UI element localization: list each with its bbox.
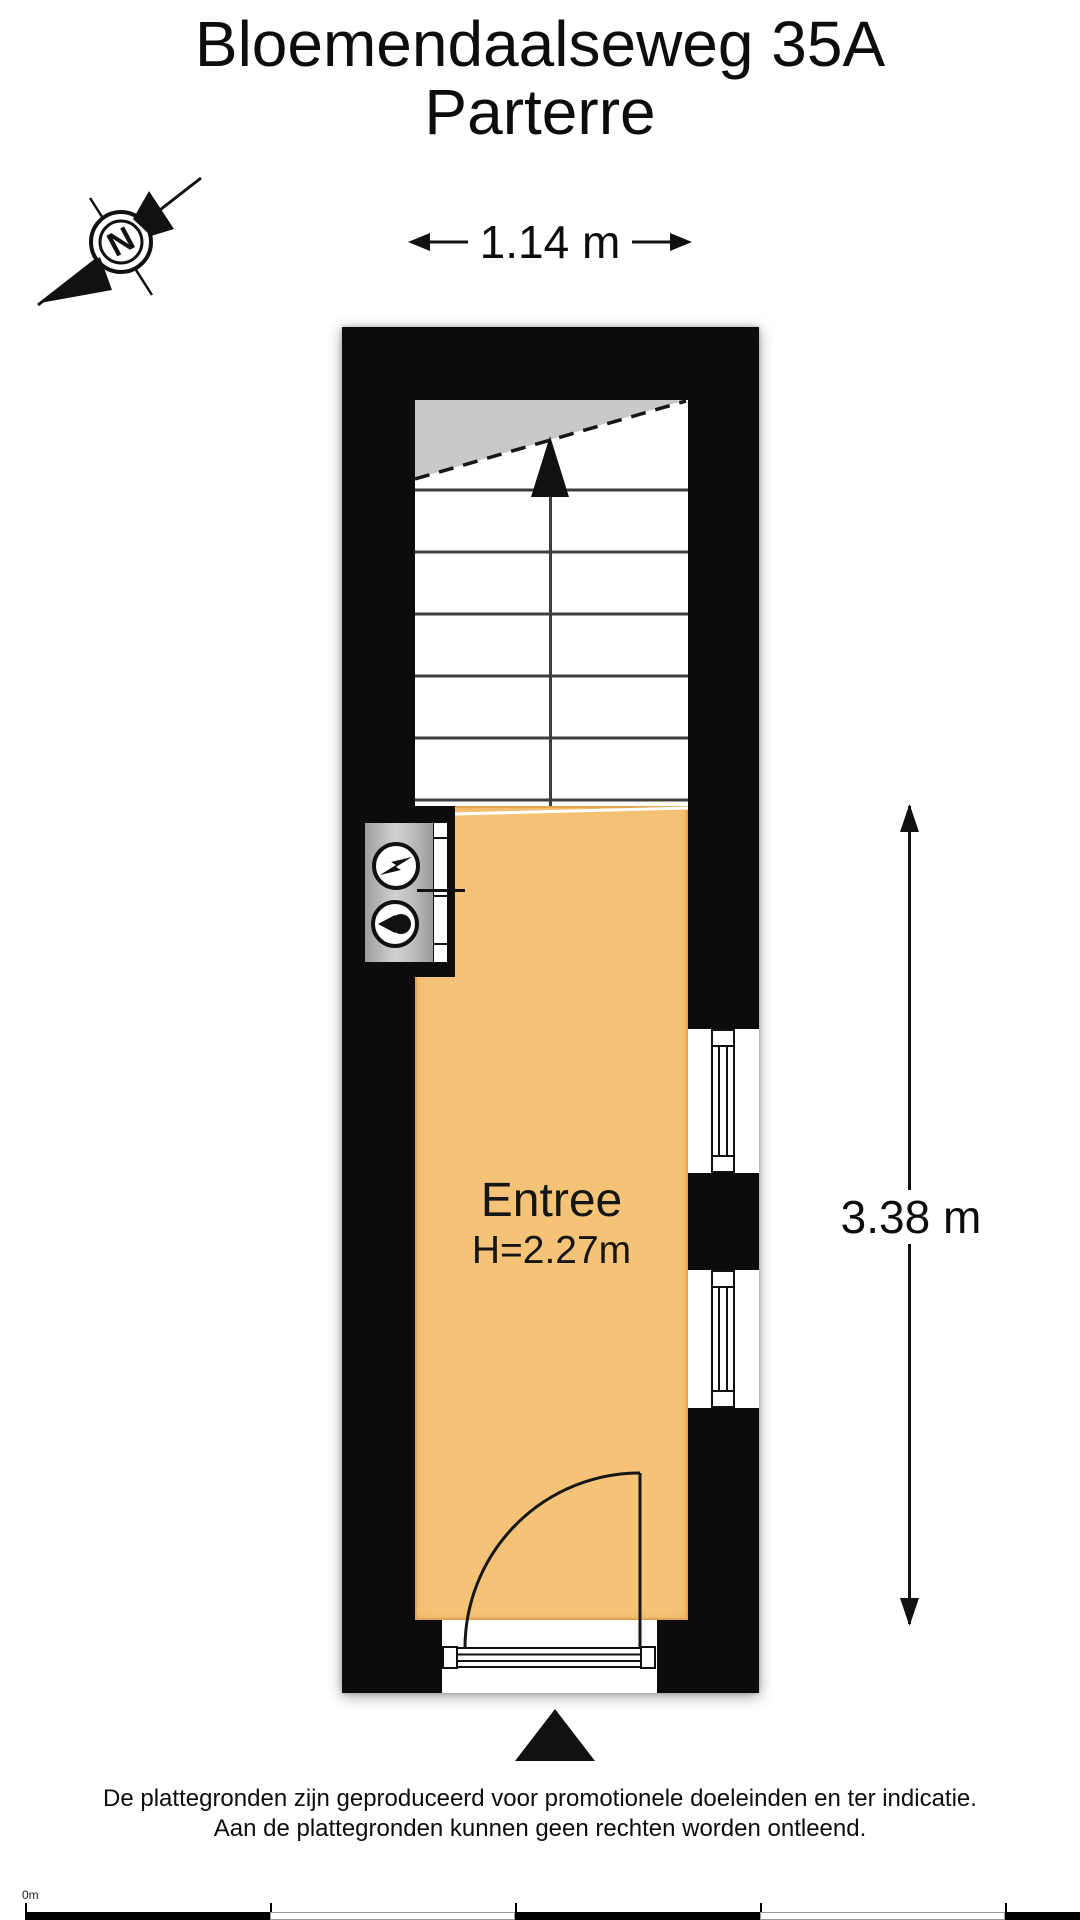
scale-bar-segment bbox=[1005, 1912, 1080, 1920]
compass-tail-pointer bbox=[40, 257, 112, 303]
window-top bbox=[688, 1029, 759, 1173]
entrance-arrow-icon bbox=[512, 1706, 598, 1764]
compass-north-icon: N bbox=[26, 156, 212, 324]
floor-plan: Entree H=2.27m bbox=[342, 327, 759, 1693]
disclaimer-line-1: De plattegronden zijn geproduceerd voor … bbox=[0, 1784, 1080, 1814]
height-dimension-arrow-down-icon bbox=[900, 1598, 919, 1626]
width-dimension-label: 1.14 m bbox=[460, 216, 640, 268]
meter-cabinet-door bbox=[434, 823, 447, 962]
disclaimer: De plattegronden zijn geproduceerd voor … bbox=[0, 1784, 1080, 1844]
scale-tick bbox=[515, 1903, 517, 1912]
stair-nosing-edge bbox=[415, 806, 688, 818]
room-name-label: Entree bbox=[415, 1174, 688, 1228]
page-title: Bloemendaalseweg 35A Parterre bbox=[0, 10, 1080, 146]
scale-tick bbox=[270, 1903, 272, 1912]
staircase-drawing bbox=[415, 400, 688, 806]
scale-bar-segment bbox=[25, 1912, 270, 1920]
stair-treads bbox=[415, 490, 688, 806]
scale-tick bbox=[25, 1903, 27, 1912]
meter-door-divider bbox=[434, 943, 447, 945]
scale-bar-segment bbox=[760, 1912, 1005, 1920]
height-dimension-label: 3.38 m bbox=[826, 1190, 996, 1244]
meter-door-divider bbox=[434, 895, 447, 897]
title-floor: Parterre bbox=[0, 78, 1080, 146]
window-bottom bbox=[688, 1270, 759, 1408]
meter-door-divider bbox=[434, 837, 447, 839]
scale-tick bbox=[760, 1903, 762, 1912]
door-swing-arc bbox=[465, 1473, 640, 1648]
width-dimension-arrow-right-icon bbox=[630, 229, 694, 255]
room-label-block: Entree H=2.27m bbox=[415, 1174, 688, 1274]
meter-symbols bbox=[365, 823, 433, 962]
scale-tick bbox=[1005, 1903, 1007, 1912]
scale-bar-segment bbox=[270, 1912, 515, 1920]
window-frame bbox=[688, 1270, 759, 1408]
meter-cabinet-handle bbox=[417, 889, 465, 892]
staircase bbox=[415, 400, 688, 806]
height-dimension-arrow-up-icon bbox=[900, 804, 919, 832]
window-frame bbox=[688, 1029, 759, 1173]
entry-door-swing bbox=[440, 1470, 650, 1656]
disclaimer-line-2: Aan de plattegronden kunnen geen rechten… bbox=[0, 1814, 1080, 1844]
title-address: Bloemendaalseweg 35A bbox=[0, 10, 1080, 78]
meter-cabinet bbox=[365, 823, 433, 962]
scale-bar-segment bbox=[515, 1912, 760, 1920]
room-ceiling-height-label: H=2.27m bbox=[415, 1228, 688, 1274]
scale-origin-label: 0m bbox=[22, 1888, 39, 1902]
